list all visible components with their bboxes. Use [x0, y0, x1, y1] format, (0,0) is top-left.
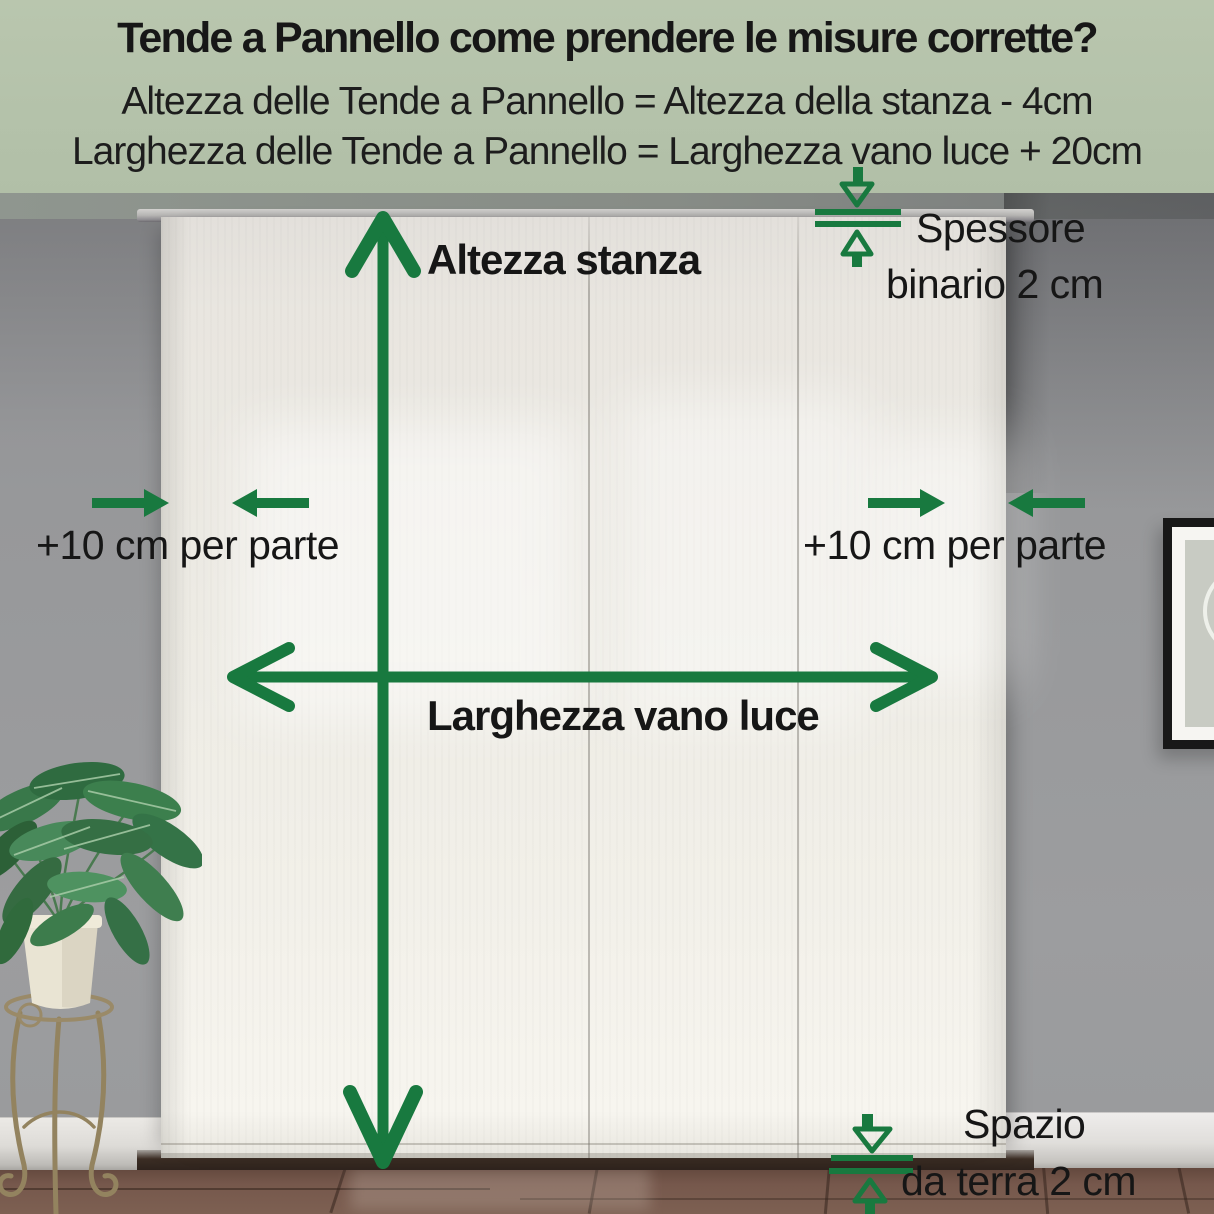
potted-plant	[0, 745, 202, 1214]
opening-width-label: Larghezza vano luce	[427, 692, 819, 740]
floor-gap-label-line1: Spazio	[963, 1101, 1085, 1148]
curtain-hem	[161, 1143, 1006, 1145]
room-scene	[0, 0, 1214, 1214]
window-reflection	[241, 422, 581, 722]
floor-gap-label-line2: da terra 2 cm	[901, 1158, 1136, 1205]
picture-frame	[1163, 518, 1214, 749]
left-wall	[0, 219, 162, 439]
curtain-bottom-edge	[161, 1153, 1006, 1158]
panel-seam	[588, 217, 590, 1158]
rail-thickness-label-line1: Spessore	[916, 205, 1085, 252]
frame-artwork	[1185, 540, 1214, 727]
rail-thickness-label-line2: binario 2 cm	[886, 261, 1103, 308]
panel-curtains	[161, 217, 1006, 1158]
right-extension-label: +10 cm per parte	[803, 522, 1106, 569]
artwork-circle-motif	[1203, 566, 1214, 656]
floor-reflection	[350, 1168, 650, 1210]
measurement-infographic: Tende a Pannello come prendere le misure…	[0, 0, 1214, 1214]
plant-stand	[0, 1013, 116, 1214]
room-height-label: Altezza stanza	[427, 236, 700, 284]
panel-seam	[382, 217, 384, 1158]
left-extension-label: +10 cm per parte	[36, 522, 339, 569]
panel-seam	[797, 217, 799, 1158]
